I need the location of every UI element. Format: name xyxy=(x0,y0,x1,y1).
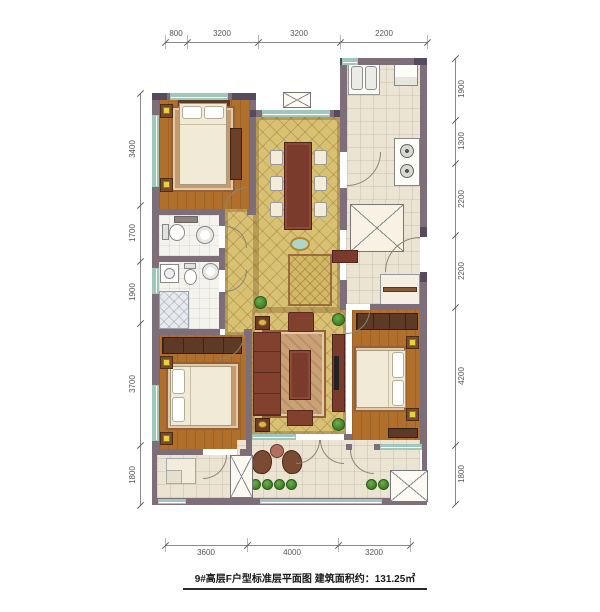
dim-label: 1900 xyxy=(457,74,467,104)
wall-pier xyxy=(334,110,340,117)
wall xyxy=(152,455,157,498)
wall xyxy=(420,272,427,450)
blanket-line xyxy=(180,124,226,125)
caption: 9#高层F户型标准层平面图 建筑面积约：131.25㎡ xyxy=(145,569,465,590)
table-lamp xyxy=(258,421,267,428)
dim-label: 2200 xyxy=(369,29,399,39)
plant xyxy=(378,479,389,490)
toilet xyxy=(184,269,197,285)
window xyxy=(152,268,159,294)
dim-label: 1800 xyxy=(128,460,138,490)
ac-platform xyxy=(390,470,428,502)
wall xyxy=(157,449,203,455)
caption-text: 9#高层F户型标准层平面图 建筑面积约：131.25㎡ xyxy=(183,570,428,590)
ottoman xyxy=(287,410,313,426)
wall xyxy=(219,292,225,329)
bath-shelf xyxy=(174,216,198,223)
kitchen-sink xyxy=(351,66,363,90)
balcony-table xyxy=(270,444,284,458)
burner xyxy=(400,144,414,158)
dim-label: 1900 xyxy=(128,277,138,307)
dim-line-right xyxy=(455,58,456,505)
bedside-lamp xyxy=(163,435,170,442)
pillow xyxy=(204,106,224,119)
dim-label: 1300 xyxy=(457,126,467,156)
washer-drum xyxy=(164,268,175,279)
floor-plan-page: 800 3200 3200 2200 3600 4000 3200 3400 1… xyxy=(0,0,600,612)
burner xyxy=(400,164,414,178)
dining-chair xyxy=(314,202,327,217)
dim-label: 1700 xyxy=(128,218,138,248)
bedside-lamp xyxy=(409,339,416,346)
wall xyxy=(219,248,225,270)
dim-tick xyxy=(137,502,144,509)
pillar xyxy=(230,455,253,498)
dining-table xyxy=(284,142,312,230)
coffee-table xyxy=(289,350,311,400)
sink xyxy=(196,226,214,244)
dim-label: 2200 xyxy=(457,256,467,286)
plant xyxy=(366,479,377,490)
dim-label: 3700 xyxy=(128,369,138,399)
pillow xyxy=(392,380,404,406)
wall-pier xyxy=(414,58,427,65)
window xyxy=(342,58,358,65)
bedside-lamp xyxy=(163,181,170,188)
pillow xyxy=(172,369,185,394)
armchair xyxy=(288,312,314,332)
toilet-tank xyxy=(162,224,169,240)
window xyxy=(158,499,186,504)
wall-pier xyxy=(152,93,167,100)
blanket-line xyxy=(388,351,389,407)
dining-chair xyxy=(314,176,327,191)
balcony-step-inner xyxy=(166,470,182,484)
dim-tick xyxy=(452,501,459,508)
dim-label: 3200 xyxy=(359,548,389,558)
dim-label: 1800 xyxy=(457,459,467,489)
wall-pier xyxy=(420,272,427,282)
kitchen-sink xyxy=(365,66,377,90)
console-mirror xyxy=(290,237,310,251)
window xyxy=(152,385,159,441)
toilet xyxy=(169,224,185,241)
closet-rod xyxy=(383,287,417,292)
window xyxy=(152,115,159,187)
wall xyxy=(340,280,347,304)
bedside-lamp xyxy=(163,359,170,366)
plant xyxy=(254,296,267,309)
dim-line-top xyxy=(165,42,428,43)
dim-label: 3400 xyxy=(128,134,138,164)
wall-pier xyxy=(232,93,256,100)
dim-label: 3600 xyxy=(191,548,221,558)
dim-label: 4200 xyxy=(457,361,467,391)
wall xyxy=(340,110,347,152)
wall xyxy=(420,58,427,237)
plant xyxy=(286,479,297,490)
wall xyxy=(152,209,225,215)
runner-rug xyxy=(288,254,332,306)
dim-label: 800 xyxy=(161,29,191,39)
dresser xyxy=(230,128,242,180)
wall xyxy=(219,215,225,226)
tv xyxy=(334,356,339,390)
table-lamp xyxy=(258,319,267,326)
plant xyxy=(262,479,273,490)
sink xyxy=(202,263,219,280)
window xyxy=(260,499,382,504)
wall-pier xyxy=(250,110,256,117)
wall xyxy=(340,65,347,110)
plant xyxy=(274,479,285,490)
low-cabinet xyxy=(388,428,418,438)
window xyxy=(380,444,422,450)
wall-pier xyxy=(420,227,427,237)
wall xyxy=(159,256,219,262)
bedside-lamp xyxy=(163,107,170,114)
sofa xyxy=(253,332,281,416)
dining-chair xyxy=(270,202,283,217)
ac-platform xyxy=(283,92,311,108)
window xyxy=(262,110,330,117)
wall xyxy=(340,188,347,230)
dim-label: 3200 xyxy=(207,29,237,39)
wall xyxy=(247,209,256,215)
shoe-cabinet xyxy=(332,250,358,263)
blanket-line xyxy=(190,367,191,425)
plant xyxy=(332,418,345,431)
pillow xyxy=(392,352,404,378)
wall xyxy=(370,304,427,310)
bedside-lamp xyxy=(409,411,416,418)
pillow xyxy=(172,397,185,422)
window xyxy=(170,93,228,100)
window xyxy=(252,434,296,440)
dining-chair xyxy=(270,150,283,165)
dim-line-bottom xyxy=(165,545,410,546)
dim-label: 4000 xyxy=(277,548,307,558)
dining-chair xyxy=(314,150,327,165)
wall xyxy=(344,434,352,440)
shower xyxy=(159,291,189,329)
wall xyxy=(152,329,220,335)
dim-label: 2200 xyxy=(457,184,467,214)
dim-label: 3200 xyxy=(284,29,314,39)
pillow xyxy=(182,106,202,119)
plant xyxy=(332,313,345,326)
dining-chair xyxy=(270,176,283,191)
